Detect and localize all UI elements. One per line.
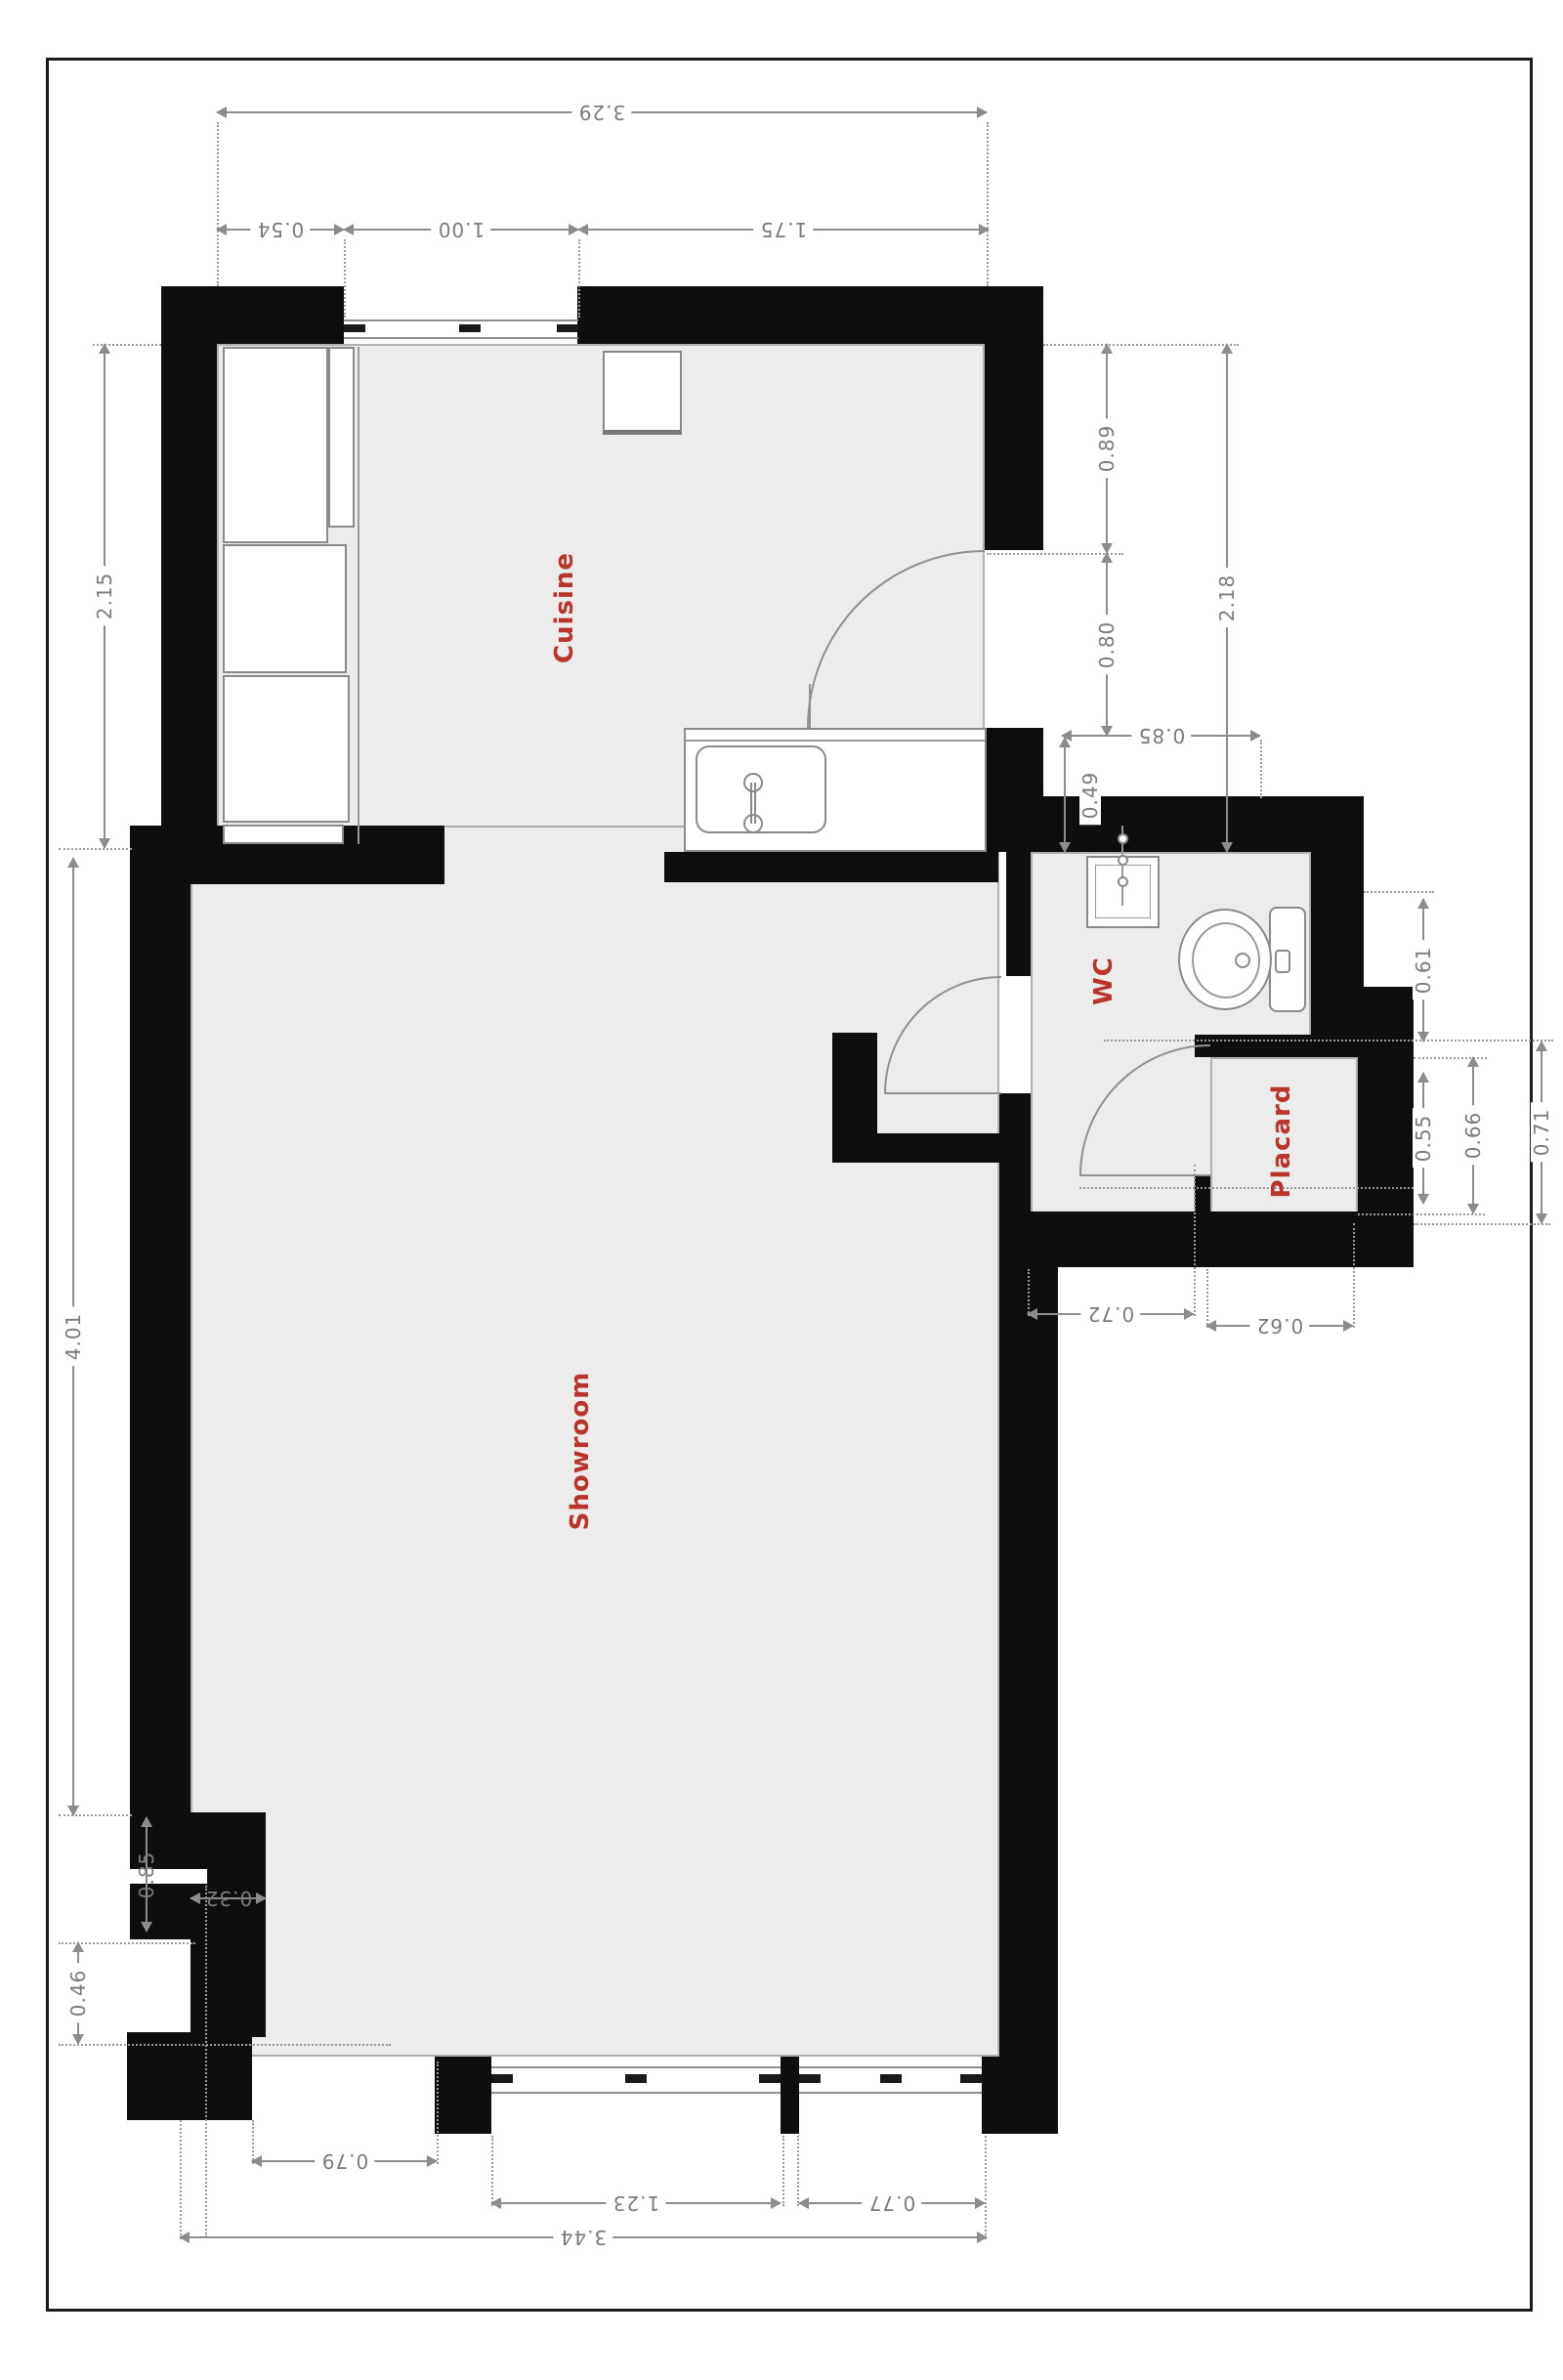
wall [1195, 1175, 1210, 1223]
extension-line [59, 2044, 391, 2046]
extension-line [1414, 1223, 1550, 1225]
dim-label-west_notch: 0.32 [198, 1888, 258, 1909]
dim-label-kitchen_niche_depth: 0.49 [1079, 765, 1101, 825]
wall [985, 286, 1043, 550]
dim-label-bottom_window1: 1.23 [607, 2192, 666, 2214]
wall [1006, 852, 1031, 976]
dimension-top_left: 0.54 [217, 229, 344, 231]
window-glass-line [799, 2092, 982, 2094]
extension-line [797, 2136, 799, 2206]
dimension-kitchen_height: 2.15 [104, 344, 106, 848]
kitchen-door-leaf [809, 684, 811, 733]
extension-line [1206, 1269, 1208, 1328]
window-frame-tick [625, 2074, 647, 2083]
dimension-west_notch: 0.32 [190, 1897, 266, 1899]
wall [664, 852, 998, 882]
kitchen-cabinet [223, 544, 347, 673]
room-label-cuisine: Cuisine [550, 552, 579, 663]
wall [999, 1260, 1058, 2134]
dim-label-top_window: 1.00 [432, 219, 491, 240]
kitchen-cabinet [223, 347, 328, 543]
wall [190, 1939, 266, 2037]
dimension-placard_inner: 0.55 [1422, 1073, 1424, 1204]
floor-plan: Cuisine Showroom WC Placard 3.290.541.00… [0, 0, 1563, 2380]
window-frame-tick [491, 2074, 513, 2083]
extension-line [59, 848, 132, 850]
wall [1195, 1035, 1358, 1057]
dimension-kitchen_door_top: 0.89 [1106, 344, 1108, 553]
kitchen-cabinet [328, 347, 355, 528]
window-glass-line [491, 2066, 781, 2068]
window-frame-tick [759, 2074, 781, 2083]
extension-line [437, 2061, 439, 2164]
dim-label-bottom_total: 3.44 [554, 2227, 613, 2248]
kitchen-counter-edge [358, 347, 359, 844]
dim-label-placard_inner: 0.55 [1413, 1109, 1434, 1169]
placard-door-leaf [1079, 1174, 1210, 1176]
extension-line [1364, 891, 1434, 893]
dimension-placard_mid: 0.66 [1472, 1057, 1474, 1213]
dim-label-top_total: 3.29 [572, 102, 632, 123]
dimension-wc_east: 0.61 [1422, 899, 1424, 1041]
dimension-top_window: 1.00 [344, 229, 578, 231]
wall [999, 1093, 1031, 1267]
window-frame-tick [344, 324, 365, 332]
dim-label-wc_south: 0.72 [1081, 1303, 1141, 1325]
wall [1358, 1041, 1414, 1223]
window-glass-line [799, 2066, 982, 2068]
extension-line [1358, 1213, 1485, 1215]
dimension-kitchen_right_total: 2.18 [1226, 344, 1228, 852]
dimension-west_lower: 0.46 [77, 1942, 79, 2044]
dim-label-kitchen_door: 0.80 [1096, 615, 1118, 674]
window-frame-tick [880, 2074, 902, 2083]
toilet-flush-icon [1235, 953, 1250, 968]
dimension-bottom_window1: 1.23 [491, 2202, 781, 2204]
dimension-bottom_window2: 0.77 [799, 2202, 985, 2204]
wall [435, 2057, 491, 2134]
wall [161, 286, 217, 853]
wc-faucet-icon [1118, 876, 1128, 887]
dimension-placard_south: 0.62 [1206, 1325, 1353, 1327]
wall [130, 826, 190, 1819]
window-frame-tick [459, 324, 481, 332]
kitchen-faucet-stem [750, 783, 756, 824]
kitchen-counter-line [686, 740, 985, 742]
wall [781, 2057, 799, 2134]
dimension-placard_outer: 0.71 [1541, 1041, 1542, 1223]
room-label-wc: WC [1089, 956, 1119, 1005]
showroom-floor [190, 826, 999, 2057]
wc-faucet-icon [1118, 855, 1128, 866]
dimension-bottom_door: 0.79 [252, 2160, 437, 2162]
wall [1311, 987, 1414, 1041]
dim-label-kitchen_door_top: 0.89 [1096, 419, 1118, 479]
dim-label-west_pilaster: 0.85 [136, 1845, 157, 1904]
window-glass-line [344, 319, 578, 321]
dim-label-placard_mid: 0.66 [1462, 1106, 1484, 1166]
extension-line [1353, 1223, 1355, 1328]
dimension-bottom_total: 3.44 [180, 2236, 987, 2238]
dim-label-west_lower: 0.46 [67, 1964, 89, 2023]
extension-line [1194, 1165, 1196, 1316]
room-label-showroom: Showroom [566, 1372, 595, 1531]
extension-line [205, 1886, 207, 2237]
dim-label-wc_east: 0.61 [1413, 941, 1434, 1000]
extension-line [578, 239, 580, 318]
dim-label-top_left: 0.54 [251, 219, 311, 240]
dim-label-placard_outer: 0.71 [1531, 1103, 1552, 1163]
dim-label-kitchen_niche: 0.85 [1131, 725, 1191, 746]
room-label-placard: Placard [1267, 1084, 1296, 1199]
dim-label-bottom_door: 0.79 [315, 2150, 374, 2172]
dim-label-placard_south: 0.62 [1250, 1315, 1310, 1337]
window-glass-line [491, 2092, 781, 2094]
kitchen-appliance [603, 351, 682, 435]
wall [1031, 796, 1311, 852]
window-frame-tick [799, 2074, 821, 2083]
dim-label-top_right: 1.75 [754, 219, 814, 240]
wc-door-leaf [884, 1092, 1001, 1094]
dim-label-showroom_height: 4.01 [63, 1307, 84, 1367]
extension-line [1043, 344, 1239, 346]
extension-line [1104, 1040, 1553, 1041]
kitchen-cabinet [223, 825, 344, 844]
dimension-wc_south: 0.72 [1028, 1313, 1194, 1315]
kitchen-cabinet [223, 675, 350, 823]
dimension-top_right: 1.75 [578, 229, 989, 231]
dim-label-bottom_window2: 0.77 [863, 2192, 922, 2214]
wall [832, 1133, 1015, 1163]
wc-faucet-icon [1118, 833, 1128, 844]
extension-line [1260, 740, 1262, 798]
dimension-kitchen_niche_depth: 0.49 [1064, 738, 1066, 852]
extension-line [491, 2136, 493, 2206]
dimension-west_pilaster: 0.85 [146, 1817, 148, 1932]
window-glass-line [344, 337, 578, 339]
wall [577, 286, 1043, 344]
dimension-top_total: 3.29 [217, 111, 987, 113]
dimension-kitchen_niche: 0.85 [1062, 735, 1260, 737]
dimension-showroom_height: 4.01 [72, 858, 74, 1815]
toilet-tank-button [1275, 950, 1290, 973]
extension-line [217, 122, 219, 286]
extension-line [987, 122, 989, 286]
wall [1311, 796, 1364, 987]
window-frame-tick [557, 324, 578, 332]
dim-label-kitchen_right_total: 2.18 [1216, 569, 1238, 628]
extension-line [344, 239, 346, 318]
window-frame-tick [960, 2074, 982, 2083]
dimension-kitchen_door: 0.80 [1106, 553, 1108, 736]
extension-line [1079, 1187, 1414, 1189]
dim-label-kitchen_height: 2.15 [94, 567, 115, 626]
extension-line [180, 2120, 182, 2239]
extension-line [985, 2136, 987, 2239]
extension-line [782, 2136, 784, 2206]
